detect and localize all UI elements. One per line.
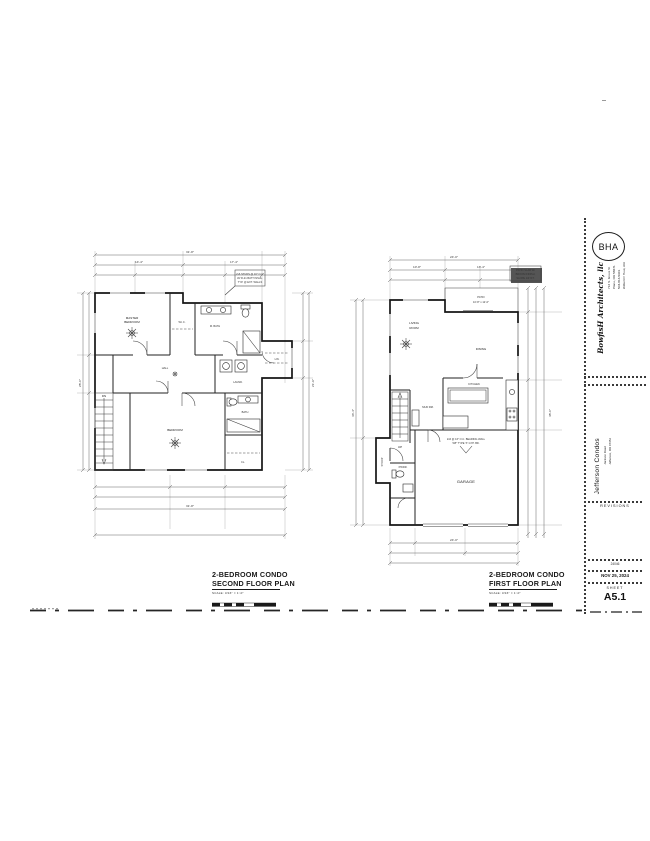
stairs-down (95, 393, 113, 470)
dim-top-overall: 31'-8" (186, 250, 194, 254)
firm-address: 712 S. Grove St Plano, OR 58671 503-813-… (607, 262, 626, 289)
dimension-chains: 24'-0" 10'-8" 13'-4" 24'-0" 43'-4" 48'-0… (351, 255, 552, 565)
note-line: TYP. @ EXT. WALLS (238, 280, 263, 284)
project-address-line: Jefferson, OR 97352 (608, 438, 612, 465)
room-label-living-2: ROOM (409, 326, 419, 330)
plan-scale-note: SCALE: 3/16" = 1'-0" (212, 591, 302, 595)
laundry-fixtures (220, 360, 247, 372)
stairs-dn-label: DN (102, 394, 106, 398)
firm-logo: BHA (592, 232, 625, 261)
plan-title-line1: 2-BEDROOM CONDO (489, 570, 579, 579)
dim-left: 43'-4" (351, 409, 355, 417)
firm-info: BowfisH Architects, llc 712 S. Grove St … (596, 262, 626, 357)
second-floor-title-block: 2-BEDROOM CONDO SECOND FLOOR PLAN SCALE:… (212, 570, 302, 613)
titleblock-divider (588, 582, 642, 584)
room-label-cl: CL. (241, 460, 245, 464)
dim-bottom-overall: 31'-8" (186, 504, 194, 508)
room-label-laund: LAUND. (233, 380, 243, 384)
project-name: Jefferson Condos (594, 438, 601, 494)
garage-note-2: 5/8" TYPE 'X' GYP. BD. (452, 441, 479, 445)
room-label-lin: LIN. (275, 357, 280, 361)
room-label-garage: GARAGE (457, 479, 475, 484)
note-line: SLOPE 1/4"/FT. (516, 276, 534, 280)
plan-title-line2: FIRST FLOOR PLAN (489, 579, 557, 590)
mud-bench (412, 410, 419, 426)
extension-lines (77, 251, 313, 539)
kitchen-fixtures (443, 380, 518, 430)
patio-dim: 10'-8" x 12'-0" (473, 300, 489, 304)
firm-address-line: 503-813-5901 (617, 262, 621, 289)
hall-bath-fixtures (227, 396, 260, 432)
note-line: 2x6 STUDS @ 16" O.C. (236, 272, 264, 276)
powder-room-fixtures (392, 470, 413, 492)
dim-top-a: 10'-8" (413, 265, 421, 269)
room-label-mbath: M. BATH (210, 324, 220, 328)
plan-scale-note: SCALE: 3/16" = 1'-0" (489, 591, 579, 595)
firm-address-line: 712 S. Grove St (607, 262, 611, 289)
stairs-up (392, 392, 408, 441)
firm-address-line: Plano, OR 58671 (612, 262, 616, 289)
first-floor-title-block: 2-BEDROOM CONDO FIRST FLOOR PLAN SCALE: … (489, 570, 579, 613)
titleblock-bottom-rule (590, 610, 642, 614)
titleblock-border-left (584, 218, 586, 614)
titleblock-divider (584, 384, 646, 386)
first-floor-plan-drawing: 24'-0" 10'-8" 13'-4" 24'-0" 43'-4" 48'-0… (348, 248, 565, 573)
room-label-hall: HALL (162, 366, 169, 370)
room-label-pwdr: PWDR. (399, 465, 408, 469)
scanned-sheet: { "titleblock": { "logo": "BHA", "firm":… (0, 0, 650, 841)
dim-top-b: 13'-4" (477, 265, 485, 269)
revisions-label: REVISIONS (590, 504, 640, 508)
room-label-mud: MUD RM. (422, 405, 434, 409)
room-label-living-1: LIVING (409, 321, 420, 325)
firm-name: BowfisH Architects, llc (596, 262, 605, 354)
firm-logo-text: BHA (599, 242, 619, 252)
sheet-bottom-dashed-border (30, 608, 582, 613)
dim-top-b: 17'-4" (230, 260, 238, 264)
wall-note-box: 2x6 STUDS @ 16" O.C. W/ R-21 BATT INSUL.… (225, 270, 265, 295)
dim-top-overall: 24'-0" (450, 255, 458, 259)
light-icon (173, 372, 177, 376)
room-label-master-2: BEDROOM (124, 320, 140, 324)
second-floor-plan-drawing: 31'-8" 14'-4" 17'-4" 31'-8" 28'-0" 21'-6… (75, 243, 315, 553)
titleblock-divider (584, 376, 646, 378)
sheet-date: NOV 25, 2024 (586, 573, 644, 578)
room-label-bedroom: BEDROOM (167, 428, 183, 432)
stairs-up-label: UP (398, 445, 402, 449)
room-label-bath: BATH (242, 410, 249, 414)
patio-outline: PATIO 10'-8" x 12'-0" (445, 288, 518, 312)
exterior-walls (376, 300, 518, 525)
plan-title-line2: SECOND FLOOR PLAN (212, 579, 280, 590)
job-number: 24046 (586, 562, 644, 566)
dim-top-a: 14'-4" (135, 260, 143, 264)
extension-lines (350, 256, 562, 566)
firm-address-line: Wilbert P. Hout, AIA (622, 262, 626, 289)
note-line: BROOM FINISH, (516, 272, 536, 276)
room-label-wic: W.I.C. (178, 320, 185, 324)
ceiling-fan-icon (126, 327, 138, 339)
ceiling-fan-icon (400, 338, 412, 350)
closet-rods (172, 329, 289, 453)
note-line: PATIO SLAB W/ (516, 268, 535, 272)
scan-speck (602, 100, 606, 101)
note-line: W/ R-21 BATT INSUL. (237, 276, 263, 280)
garage-note-1: 2x6 @ 16" O.C. BEARING WALL (447, 437, 486, 441)
room-label-kitchen: KITCHEN (468, 382, 480, 386)
project-info: Jefferson Condos Jackson Road Jefferson,… (594, 438, 612, 502)
patio-note-box: PATIO SLAB W/ BROOM FINISH, SLOPE 1/4"/F… (510, 266, 542, 283)
room-label-patio: PATIO (477, 295, 484, 299)
plan-title-line1: 2-BEDROOM CONDO (212, 570, 302, 579)
ceiling-fan-icon (169, 437, 181, 449)
project-address-line: Jackson Road (603, 438, 607, 465)
room-label-dining: DINING (476, 347, 487, 351)
dim-right: 21'-6" (311, 379, 315, 387)
titleblock-divider (588, 559, 642, 561)
sheet-label: SHEET (586, 586, 644, 590)
room-label-stoop: STOOP (380, 457, 384, 466)
garage-notes: 2x6 @ 16" O.C. BEARING WALL 5/8" TYPE 'X… (447, 437, 486, 453)
project-address: Jackson Road Jefferson, OR 97352 (603, 438, 612, 465)
sheet-number: A5.1 (586, 591, 644, 603)
dim-right: 48'-0" (548, 409, 552, 417)
dim-left: 28'-0" (78, 379, 82, 387)
dim-bottom-overall: 24'-0" (450, 538, 458, 542)
master-bath-fixtures (201, 305, 260, 353)
